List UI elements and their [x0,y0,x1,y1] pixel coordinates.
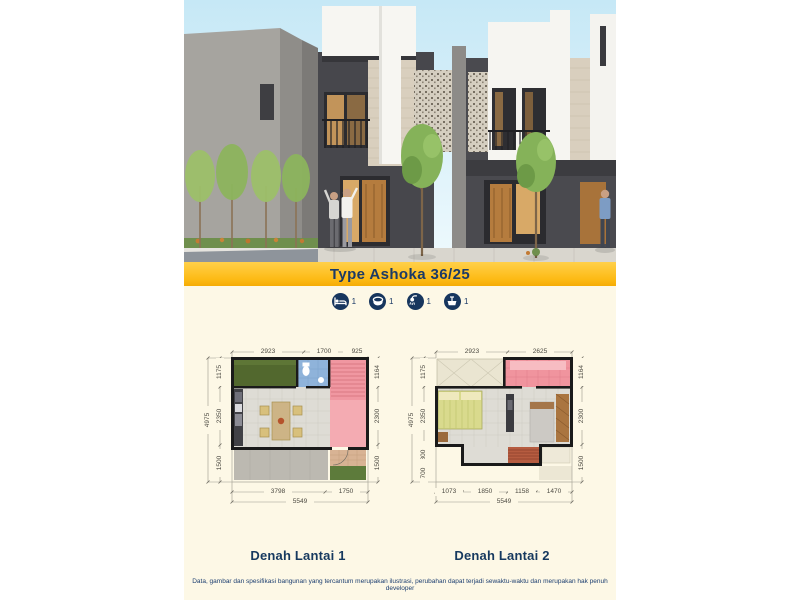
dimension-label: 1470 [540,488,568,496]
feature-count: 1 [464,297,468,306]
dimension-label: 2923 [458,348,486,356]
dimension-label: 1500 [578,449,586,477]
feature-count: 1 [427,297,431,306]
dimension-label: 1073 [435,488,463,496]
dimension-label: 1500 [216,449,224,477]
unit1-parapet [322,6,416,56]
dimension-label: 2300 [374,402,382,430]
dimension-label: 2350 [420,402,428,430]
plan-label-2: Denah Lantai 2 [404,548,600,563]
dimension-label: 2300 [578,402,586,430]
dimension-label: 1700 [310,348,338,356]
dimension-label: 4975 [204,406,212,434]
sink-icon [444,293,461,310]
dimension-label: 2625 [526,348,554,356]
type-title: Type Ashoka 36/25 [330,266,470,283]
floorplan-row: 2923170092537981750554911752350150049751… [184,344,616,544]
dimension-label: 1175 [216,358,224,386]
dimension-labels: 2923170092537981750554911752350150049751… [200,344,396,544]
dimension-label: 2350 [216,402,224,430]
house-render [184,0,616,262]
floorplan-lantai-2: 2923262510731850115814705549117523508007… [404,344,600,544]
floorplan-lantai-1: 2923170092537981750554911752350150049751… [200,344,396,544]
feature-bedroom: 1 [332,293,356,310]
dimension-label: 1158 [508,488,536,496]
dimension-label: 1850 [471,488,499,496]
disclaimer-text: Data, gambar dan spesifikasi bangunan ya… [184,578,616,592]
dimension-label: 2923 [254,348,282,356]
dimension-label: 1750 [332,488,360,496]
dimension-label: 1500 [374,449,382,477]
dimension-label: 5549 [286,498,314,506]
shower-icon [407,293,424,310]
dimension-label: 1164 [578,358,586,386]
bed-icon [332,293,349,310]
dimension-label: 1175 [420,358,428,386]
bathtub-icon [369,293,386,310]
hedge [184,238,318,248]
type-banner: Type Ashoka 36/25 [184,262,616,286]
dimension-label: 3798 [264,488,292,496]
feature-kitchen: 1 [444,293,468,310]
lower-panel: 1 1 1 1 [184,286,616,600]
flyer-content: Type Ashoka 36/25 1 1 1 [184,0,616,600]
dimension-labels: 2923262510731850115814705549117523508007… [404,344,600,544]
dimension-label: 1164 [374,358,382,386]
feature-count: 1 [389,297,393,306]
plan-label-row: Denah Lantai 1 Denah Lantai 2 [184,548,616,563]
feature-row: 1 1 1 1 [184,286,616,311]
dimension-label: 5549 [490,498,518,506]
feature-count: 1 [352,297,356,306]
flyer-page: Type Ashoka 36/25 1 1 1 [0,0,800,600]
feature-bathroom: 1 [369,293,393,310]
dimension-label: 925 [343,348,371,356]
dimension-label: 4975 [408,406,416,434]
house-render-art [184,0,616,262]
dimension-label: 700 [420,459,428,487]
plan-label-1: Denah Lantai 1 [200,548,396,563]
feature-shower: 1 [407,293,431,310]
